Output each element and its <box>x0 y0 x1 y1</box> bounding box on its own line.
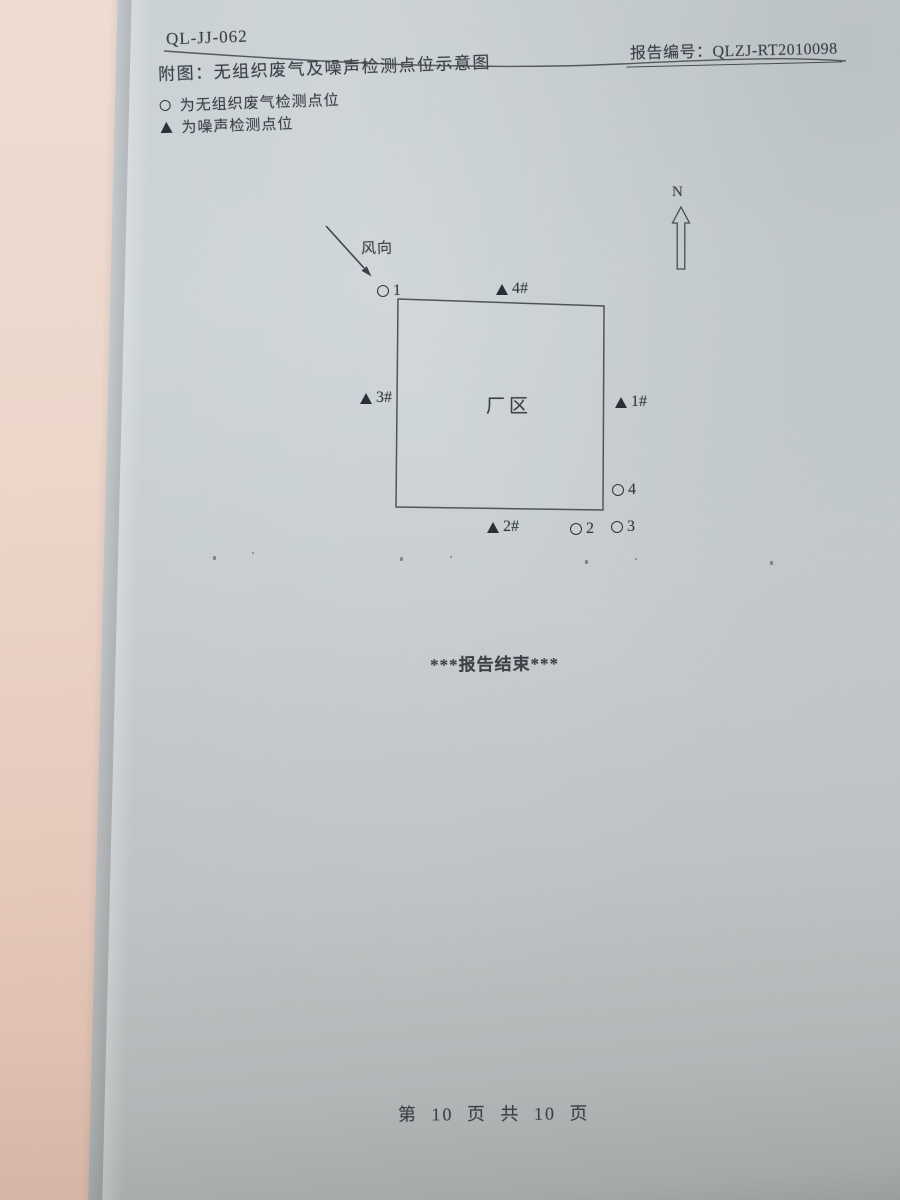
noise-point-icon <box>496 284 508 295</box>
bleed-through-mark <box>770 561 773 565</box>
noise-point-4-label: 4# <box>512 281 528 297</box>
bleed-through-mark <box>635 558 637 560</box>
legend: 为无组织废气检测点位 为噪声检测点位 <box>159 89 340 139</box>
wind-direction-label: 风向 <box>361 237 394 259</box>
gas-point-2: 2 <box>570 521 594 537</box>
noise-point-icon <box>487 522 499 533</box>
wind-direction-arrow-shaft <box>326 226 364 268</box>
bleed-through-mark <box>213 556 216 560</box>
bleed-through-mark <box>252 552 254 554</box>
bleed-through-mark <box>400 557 403 561</box>
gas-point-icon <box>612 484 624 496</box>
report-end-text: ***报告结束*** <box>430 649 559 675</box>
noise-point-icon <box>360 393 372 404</box>
gas-point-4: 4 <box>612 482 636 498</box>
north-arrow-icon <box>673 207 690 269</box>
legend-row-noise: 为噪声检测点位 <box>160 111 341 137</box>
bleed-through-mark <box>450 556 452 558</box>
bleed-through-mark <box>585 560 588 564</box>
gas-point-4-label: 4 <box>628 482 636 498</box>
figure-title: 附图：无组织废气及噪声检测点位示意图 <box>158 48 492 85</box>
gas-point-icon <box>611 521 623 533</box>
noise-point-legend-icon <box>160 121 172 132</box>
factory-area-label: 厂区 <box>486 391 532 418</box>
gas-point-1-label: 1 <box>393 283 401 299</box>
noise-point-2: 2# <box>487 519 519 535</box>
noise-point-4: 4# <box>496 281 528 297</box>
gas-point-3: 3 <box>611 519 635 535</box>
noise-point-2-label: 2# <box>503 519 519 535</box>
doc-code: QL-JJ-062 <box>166 27 248 50</box>
gas-point-3-label: 3 <box>627 519 635 535</box>
report-number: 报告编号：QLZJ-RT2010098 <box>626 34 842 67</box>
gas-point-2-label: 2 <box>586 521 594 537</box>
noise-point-icon <box>615 397 627 408</box>
page-number: 第 10 页 共 10 页 <box>398 1099 590 1126</box>
noise-point-1: 1# <box>615 394 647 410</box>
noise-point-3-label: 3# <box>376 390 392 406</box>
gas-point-icon <box>570 523 582 535</box>
document-photo: QL-JJ-062 报告编号：QLZJ-RT2010098 附图：无组织废气及噪… <box>0 0 900 1200</box>
wind-direction-arrowhead-icon <box>362 266 372 276</box>
gas-point-legend-icon <box>159 99 170 110</box>
gas-point-icon <box>377 285 389 297</box>
legend-noise-label: 为噪声检测点位 <box>181 112 294 137</box>
gas-point-1: 1 <box>377 283 401 299</box>
north-label: N <box>672 184 684 201</box>
noise-point-3: 3# <box>360 390 392 406</box>
noise-point-1-label: 1# <box>631 394 647 410</box>
